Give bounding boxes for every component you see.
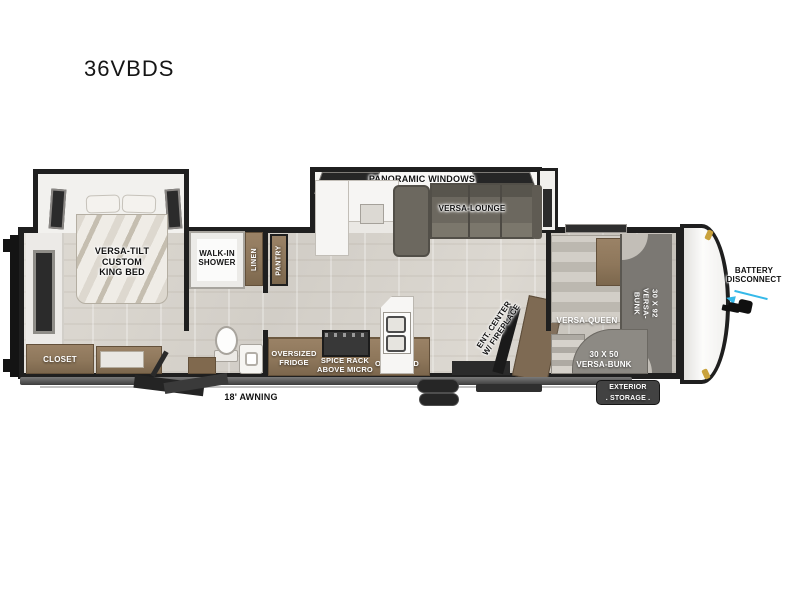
pantry-cabinet: PANTRY [270, 234, 288, 286]
kitchen-counter-side [315, 180, 349, 256]
battery-disconnect-label: BATTERY DISCONNECT [722, 266, 786, 285]
bath-cabinet [188, 357, 216, 374]
rear-bumper-tab-bottom [3, 359, 12, 372]
rear-bumper-tab-top [3, 239, 12, 252]
bath-sink-basin [245, 352, 258, 366]
pantry-label: PANTRY [276, 245, 283, 275]
awning-label: 18' AWNING [205, 392, 297, 403]
bath-kitchen-wall-upper [263, 233, 268, 293]
queen-headboard [596, 238, 623, 286]
cooktop-knobs [325, 333, 367, 337]
kitchen-prep-sink [360, 204, 384, 224]
floorplan-canvas: 36VBDS VERSA-TILT CUSTOM KING BED CLOSET… [0, 0, 800, 600]
wheel [417, 379, 459, 393]
dresser-front [100, 351, 144, 368]
model-title: 36VBDS [84, 56, 174, 82]
versa-lounge-label: VERSA-LOUNGE [412, 204, 532, 213]
sink-basin-top [386, 316, 406, 333]
king-bed-label: VERSA-TILT CUSTOM KING BED [76, 246, 168, 278]
sofa-backrest [432, 185, 532, 197]
exterior-storage-label: EXTERIOR . STORAGE . [596, 383, 660, 404]
entry-step-bar [476, 384, 542, 392]
fridge-label: OVERSIZED FRIDGE [266, 349, 322, 367]
side-panel-window [543, 189, 552, 227]
wheel [419, 393, 459, 406]
sofa-armrest [532, 185, 542, 239]
linen-cabinet: LINEN [245, 232, 263, 286]
bedroom-slideout-window-left [49, 189, 67, 230]
toilet [215, 326, 238, 355]
linen-label: LINEN [251, 248, 258, 271]
closet-label: CLOSET [26, 355, 94, 365]
bunk-30x92-label: 30 X 92 VERSA-BUNK [633, 278, 660, 330]
bunkroom-window [565, 224, 627, 233]
sink-basin-bottom [386, 335, 406, 352]
sofa-chaise [393, 185, 430, 257]
bunk-30x50-label: 30 X 50 VERSA-BUNK [556, 350, 652, 369]
pillow [86, 194, 121, 213]
shower-label: WALK-IN SHOWER [186, 249, 248, 268]
versa-queen-label: VERSA-QUEEN [549, 316, 625, 326]
rear-window [33, 250, 55, 334]
rear-bumper [10, 235, 19, 377]
sofa-seat-edge [432, 223, 532, 237]
pillow [122, 194, 157, 213]
